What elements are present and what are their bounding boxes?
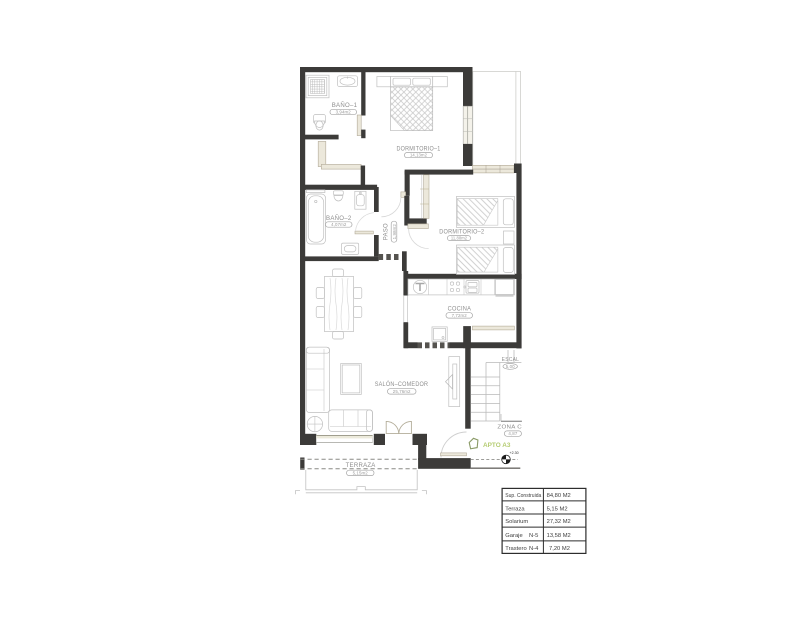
svg-text:5,00: 5,00 [506,364,515,369]
svg-text:1,98m2: 1,98m2 [392,224,397,240]
svg-text:84,80 M2: 84,80 M2 [547,493,571,499]
svg-text:4,87: 4,87 [508,431,517,436]
svg-text:13,58 M2: 13,58 M2 [547,533,571,539]
svg-text:ZONA C: ZONA C [497,424,522,430]
svg-text:TERRAZA: TERRAZA [346,463,376,469]
svg-text:14,13m2: 14,13m2 [410,153,428,158]
svg-text:5,15 M2: 5,15 M2 [547,506,568,512]
svg-text:4,07m2: 4,07m2 [331,222,347,227]
svg-text:Terraza: Terraza [505,506,525,512]
svg-text:Solarium: Solarium [505,519,528,525]
svg-text:3,94m2: 3,94m2 [336,110,352,115]
svg-text:COCINA: COCINA [448,307,472,313]
svg-text:Sup. Construida: Sup. Construida [505,493,542,499]
svg-text:ESCAL: ESCAL [502,357,520,363]
svg-text:APTO A3: APTO A3 [483,442,511,449]
svg-text:27,32 M2: 27,32 M2 [547,519,571,525]
svg-text:+2.30: +2.30 [510,451,519,455]
svg-text:Trastero: Trastero [505,546,526,552]
svg-text:PASO: PASO [383,223,389,240]
svg-text:11,88m2: 11,88m2 [451,236,468,241]
svg-text:7,20 M2: 7,20 M2 [549,546,570,552]
svg-text:N-4: N-4 [529,546,539,552]
svg-text:7,72m2: 7,72m2 [452,313,468,318]
svg-text:SALÓN–COMEDOR: SALÓN–COMEDOR [375,381,429,388]
svg-text:DORMITORIO–1: DORMITORIO–1 [397,147,441,153]
svg-text:5,15m2: 5,15m2 [353,470,369,475]
svg-text:DORMITORIO–2: DORMITORIO–2 [439,229,484,235]
svg-text:BAÑO–2: BAÑO–2 [326,215,352,222]
svg-text:BAÑO–1: BAÑO–1 [332,102,358,109]
svg-text:Garaje: Garaje [505,533,522,539]
svg-text:25,76m2: 25,76m2 [393,389,411,394]
svg-text:N-5: N-5 [529,533,538,539]
